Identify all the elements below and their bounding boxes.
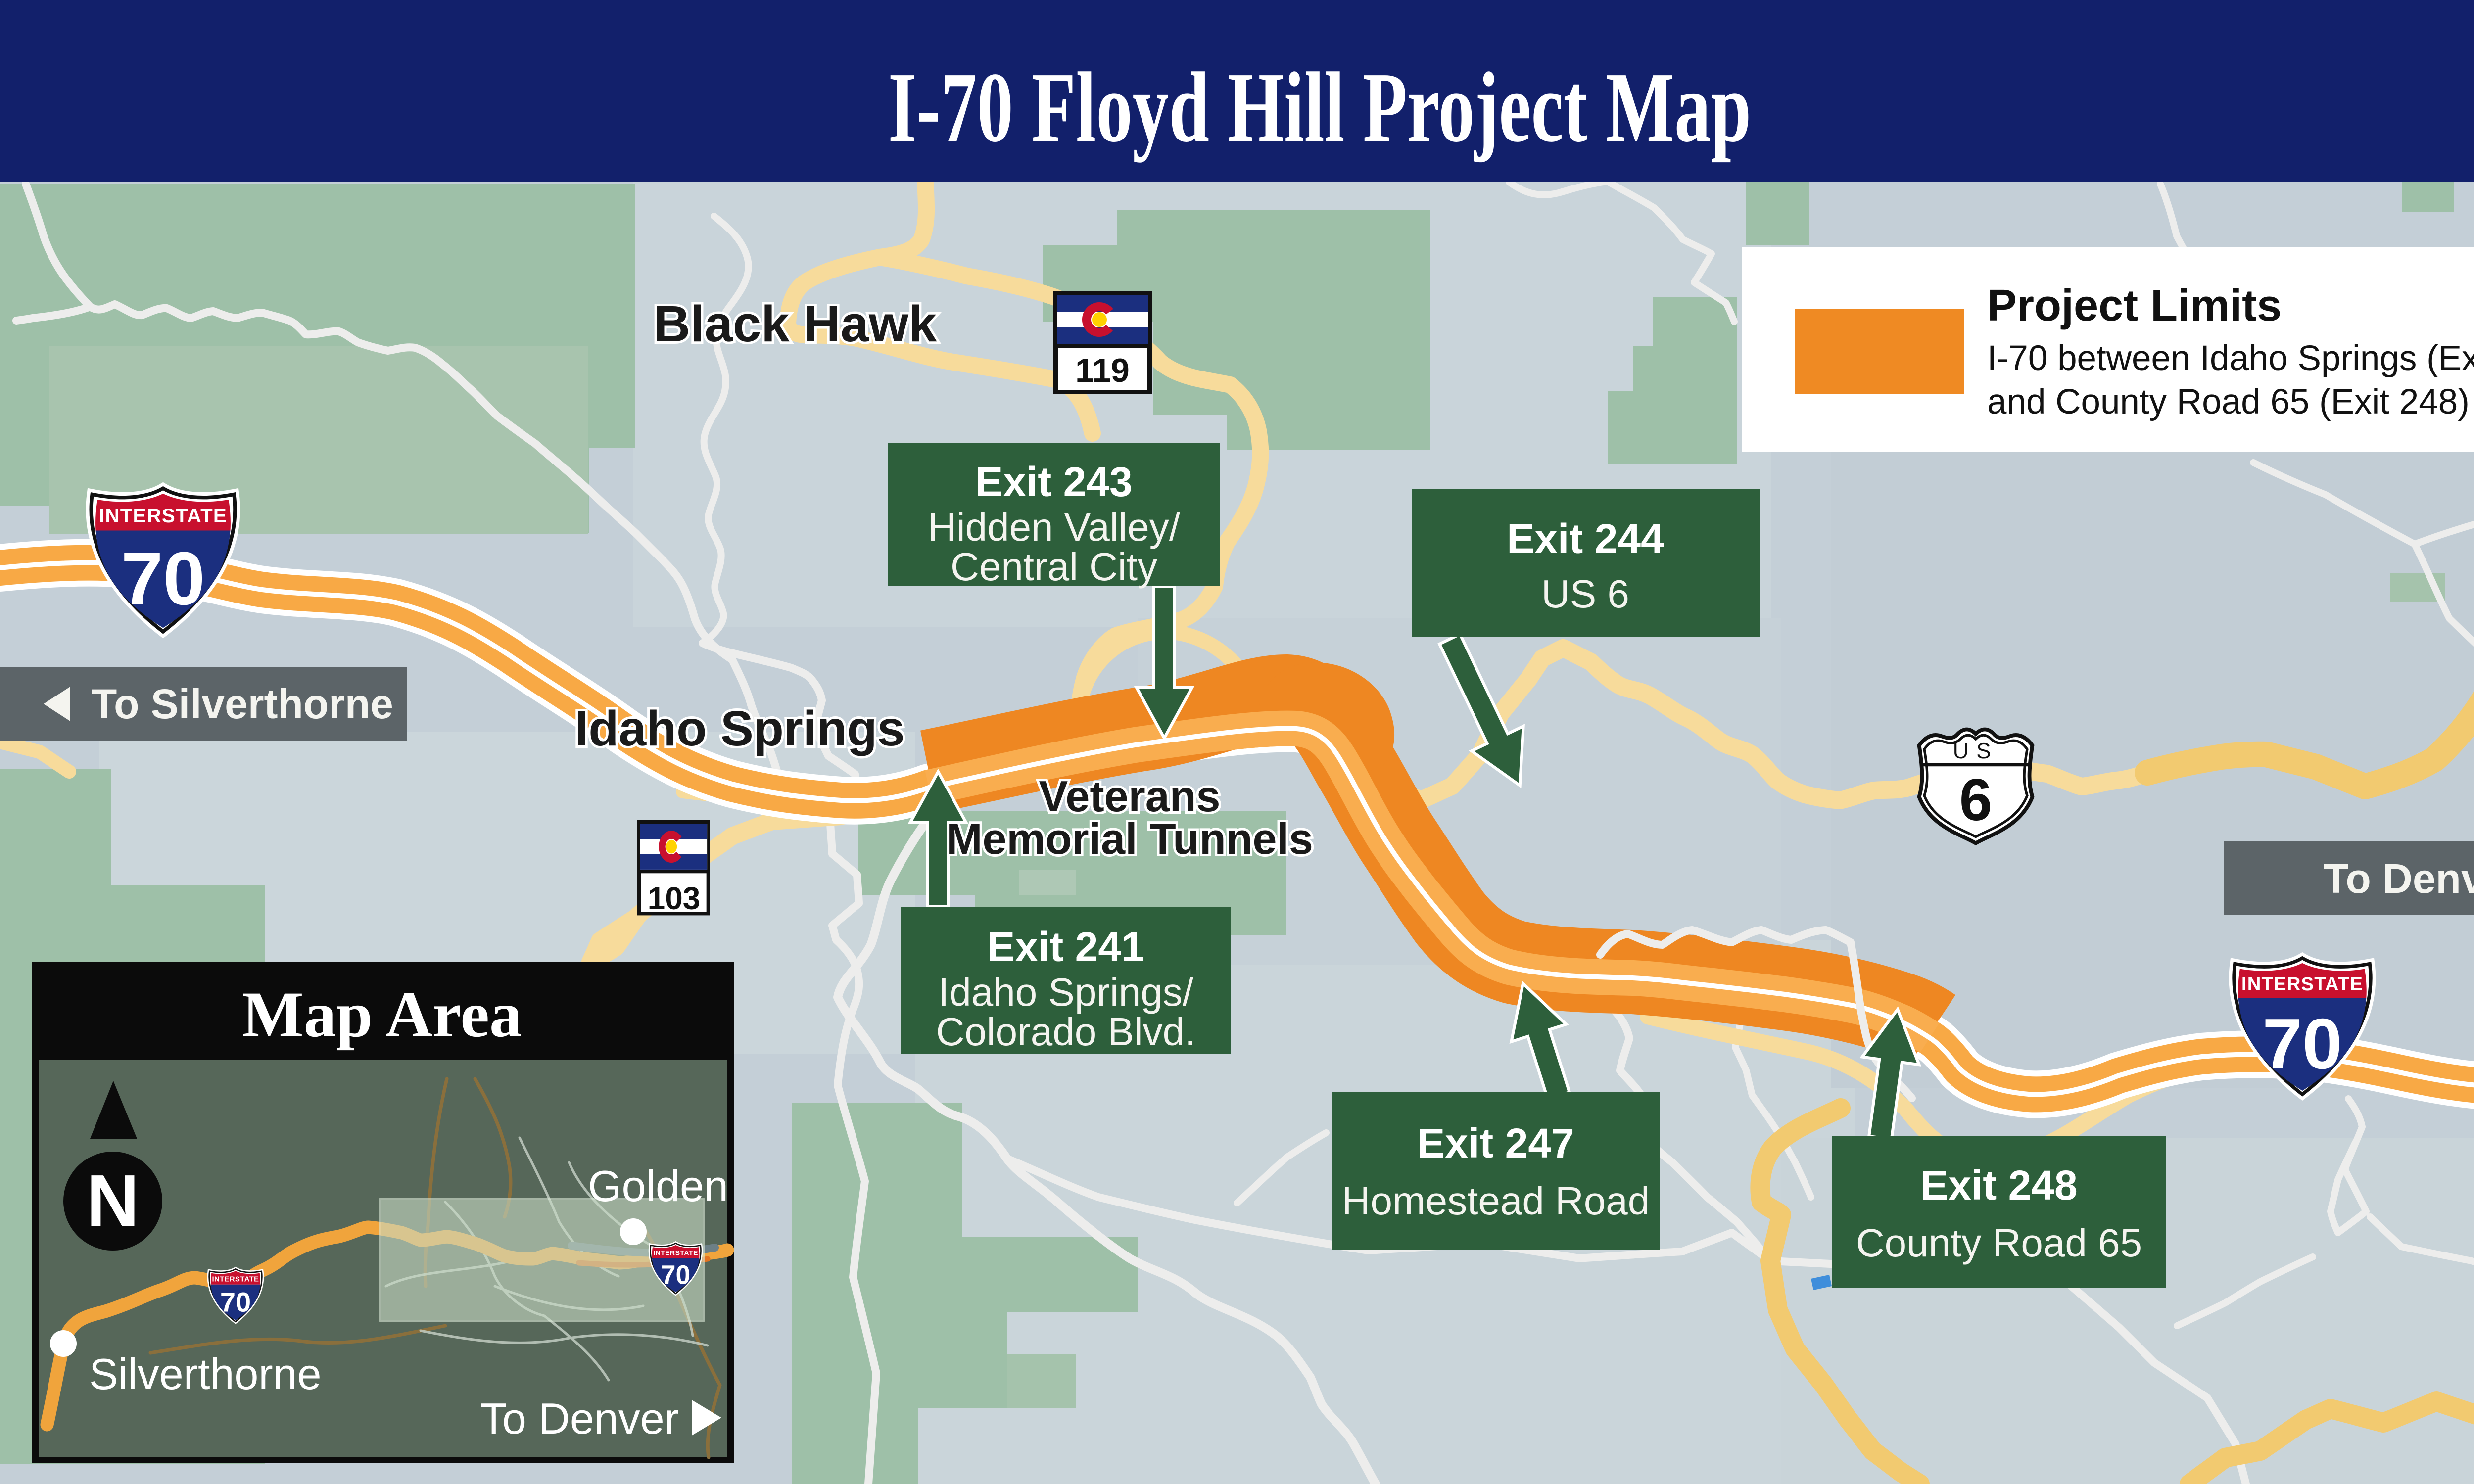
svg-text:To Silverthorne: To Silverthorne bbox=[92, 681, 393, 727]
svg-text:103: 103 bbox=[648, 881, 701, 916]
svg-text:To Denver: To Denver bbox=[2323, 855, 2474, 902]
svg-text:Idaho Springs: Idaho Springs bbox=[575, 701, 905, 756]
svg-text:Hidden Valley/: Hidden Valley/ bbox=[928, 505, 1181, 549]
svg-text:Colorado Blvd.: Colorado Blvd. bbox=[936, 1010, 1196, 1054]
svg-text:I-70 Floyd Hill Project Map: I-70 Floyd Hill Project Map bbox=[888, 52, 1752, 163]
svg-text:Veterans: Veterans bbox=[1039, 772, 1221, 821]
svg-text:Exit 247: Exit 247 bbox=[1417, 1120, 1574, 1166]
svg-text:Exit 248: Exit 248 bbox=[1920, 1162, 2078, 1208]
svg-text:119: 119 bbox=[1075, 352, 1130, 389]
svg-text:US 6: US 6 bbox=[1541, 572, 1629, 616]
svg-text:Exit 243: Exit 243 bbox=[975, 459, 1133, 505]
svg-text:Central City: Central City bbox=[951, 545, 1157, 589]
svg-text:Golden: Golden bbox=[588, 1161, 728, 1210]
svg-text:Idaho Springs/: Idaho Springs/ bbox=[938, 970, 1194, 1014]
svg-text:Map Area: Map Area bbox=[242, 978, 522, 1051]
svg-text:I-70 between Idaho Springs (Ex: I-70 between Idaho Springs (Exit 241) bbox=[1987, 339, 2474, 378]
svg-text:Exit 241: Exit 241 bbox=[987, 924, 1144, 970]
svg-text:Homestead Road: Homestead Road bbox=[1342, 1179, 1650, 1223]
svg-text:N: N bbox=[87, 1160, 140, 1242]
svg-text:and County Road 65 (Exit 248): and County Road 65 (Exit 248) bbox=[1987, 382, 2470, 421]
svg-text:To Denver: To Denver bbox=[480, 1394, 679, 1443]
svg-text:Black Hawk: Black Hawk bbox=[654, 295, 937, 352]
svg-text:Exit 244: Exit 244 bbox=[1507, 515, 1664, 562]
svg-text:Silverthorne: Silverthorne bbox=[89, 1349, 322, 1398]
svg-text:County Road 65: County Road 65 bbox=[1856, 1221, 2142, 1265]
svg-text:Memorial Tunnels: Memorial Tunnels bbox=[946, 814, 1313, 863]
svg-text:Project Limits: Project Limits bbox=[1987, 281, 2282, 330]
